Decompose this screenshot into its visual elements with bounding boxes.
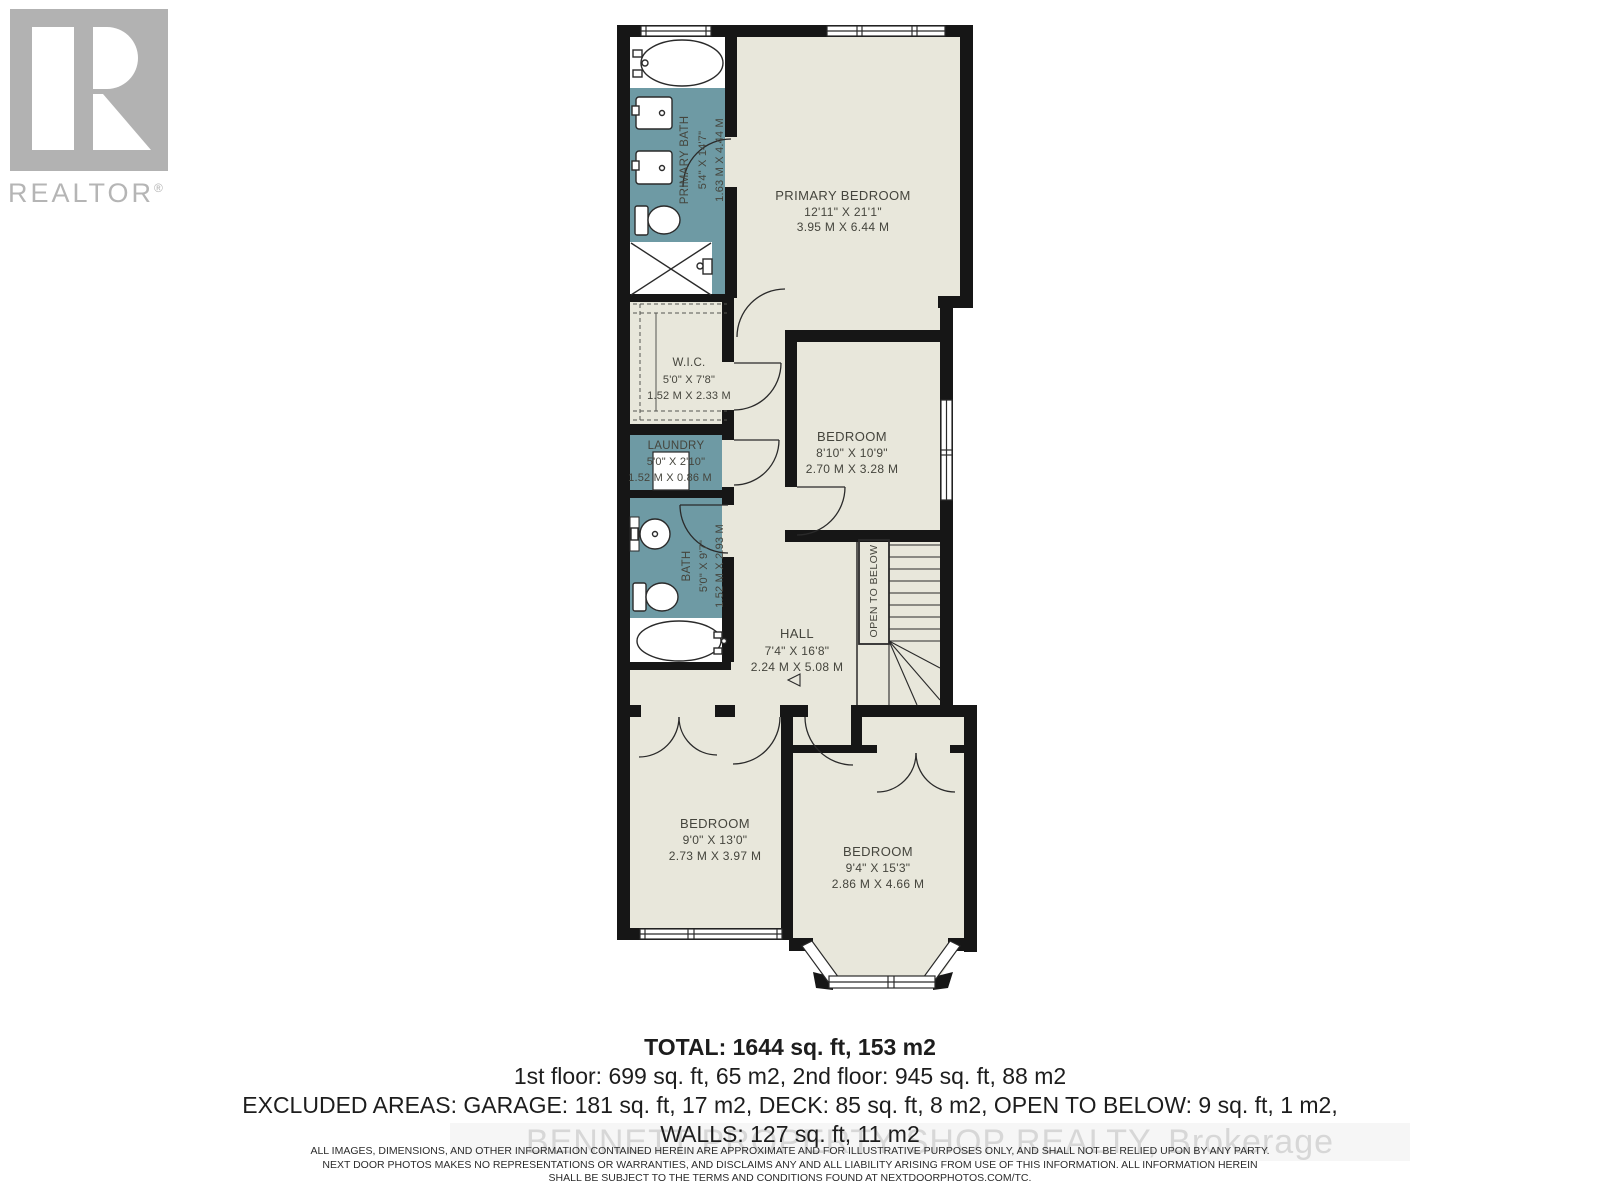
dim-hall-metric: 2.24 M X 5.08 M bbox=[751, 660, 844, 674]
window-primary-bath bbox=[641, 26, 711, 36]
label-open-to-below: OPEN TO BELOW bbox=[868, 545, 880, 638]
page: REALTOR® bbox=[0, 0, 1600, 1200]
bathtub-icon bbox=[641, 40, 723, 86]
label-primary-bedroom: PRIMARY BEDROOM bbox=[775, 188, 911, 203]
dim-wic-imperial: 5'0" X 7'8" bbox=[663, 374, 715, 386]
toilet-icon bbox=[633, 583, 646, 611]
dim-bedroom-right-imperial: 9'4" X 15'3" bbox=[846, 861, 911, 875]
dim-bedroom-mid-imperial: 8'10" X 10'9" bbox=[816, 446, 888, 460]
dim-bath-imperial: 5'0" X 9'7" bbox=[698, 540, 710, 592]
label-laundry: LAUNDRY bbox=[648, 440, 705, 452]
window-bedroom-left bbox=[640, 929, 782, 939]
dim-wic-metric: 1.52 M X 2.33 M bbox=[647, 390, 731, 402]
primary-bedroom-floor bbox=[737, 31, 963, 298]
bathtub-icon bbox=[637, 621, 721, 661]
dim-bedroom-mid-metric: 2.70 M X 3.28 M bbox=[806, 462, 899, 476]
sink-icon bbox=[636, 97, 672, 129]
toilet-icon bbox=[635, 206, 648, 235]
label-bath: BATH bbox=[681, 550, 693, 581]
dim-primary-bedroom-metric: 3.95 M X 6.44 M bbox=[797, 220, 890, 234]
disclaimer-line-3: SHALL BE SUBJECT TO THE TERMS AND CONDIT… bbox=[0, 1172, 1580, 1186]
dim-bedroom-right-metric: 2.86 M X 4.66 M bbox=[832, 877, 925, 891]
label-bedroom-mid: BEDROOM bbox=[817, 429, 887, 444]
sink-icon bbox=[636, 151, 672, 184]
dim-laundry-imperial: 5'0" X 2'10" bbox=[647, 456, 705, 468]
window-bedroom-mid bbox=[941, 400, 952, 500]
dim-bath-metric: 1.52 M X 2.93 M bbox=[714, 524, 726, 608]
dim-primary-bath-imperial: 5'4" X 14'7" bbox=[697, 131, 709, 189]
floor-areas-line: 1st floor: 699 sq. ft, 65 m2, 2nd floor:… bbox=[0, 1062, 1580, 1091]
label-hall: HALL bbox=[780, 626, 814, 641]
total-area-line: TOTAL: 1644 sq. ft, 153 m2 bbox=[0, 1033, 1580, 1062]
window-primary-bedroom bbox=[827, 26, 945, 36]
dim-primary-bath-metric: 1.63 M X 4.44 M bbox=[714, 118, 726, 202]
disclaimer: ALL IMAGES, DIMENSIONS, AND OTHER INFORM… bbox=[0, 1145, 1580, 1186]
floor-plan: PRIMARY BEDROOM 12'11" X 21'1" 3.95 M X … bbox=[0, 0, 1600, 1200]
dim-bedroom-left-metric: 2.73 M X 3.97 M bbox=[669, 849, 762, 863]
dim-hall-imperial: 7'4" X 16'8" bbox=[765, 644, 830, 658]
label-primary-bath: PRIMARY BATH bbox=[679, 116, 691, 205]
label-wic: W.I.C. bbox=[672, 357, 705, 369]
disclaimer-line-1: ALL IMAGES, DIMENSIONS, AND OTHER INFORM… bbox=[0, 1145, 1580, 1159]
dim-bedroom-left-imperial: 9'0" X 13'0" bbox=[683, 833, 748, 847]
dim-primary-bedroom-imperial: 12'11" X 21'1" bbox=[804, 205, 882, 219]
excluded-areas-line: EXCLUDED AREAS: GARAGE: 181 sq. ft, 17 m… bbox=[0, 1091, 1580, 1120]
dim-laundry-metric: 1.52 M X 0.86 M bbox=[628, 472, 712, 484]
disclaimer-line-2: NEXT DOOR PHOTOS MAKES NO REPRESENTATION… bbox=[0, 1159, 1580, 1173]
label-bedroom-left: BEDROOM bbox=[680, 816, 750, 831]
label-bedroom-right: BEDROOM bbox=[843, 844, 913, 859]
